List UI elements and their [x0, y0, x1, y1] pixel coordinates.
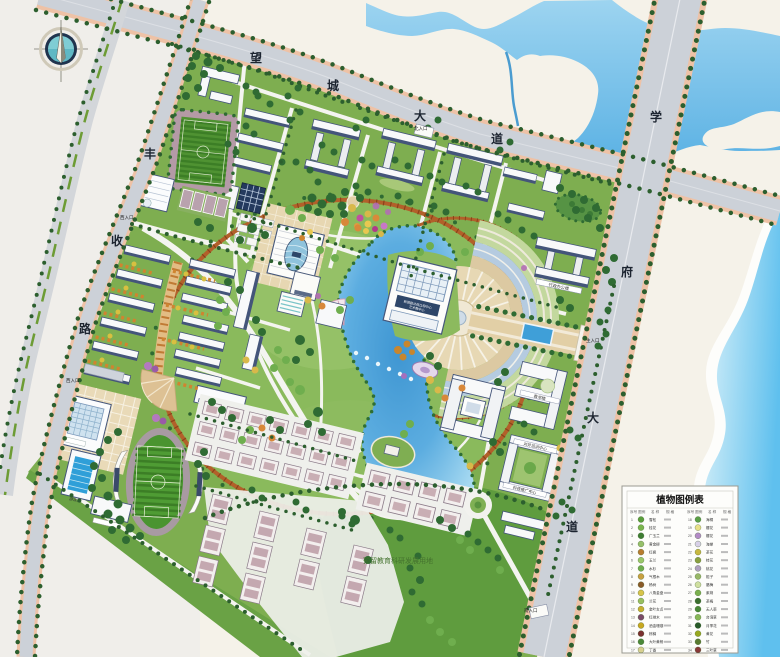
svg-text:26: 26: [688, 583, 692, 587]
svg-text:大叶黄杨: 大叶黄杨: [649, 639, 664, 644]
svg-text:序号 图例: 序号 图例: [687, 509, 703, 514]
svg-text:序号 图例: 序号 图例: [630, 509, 646, 514]
svg-text:10: 10: [631, 591, 635, 595]
svg-text:广玉兰: 广玉兰: [649, 533, 660, 538]
svg-text:5: 5: [631, 551, 633, 555]
svg-text:学: 学: [650, 109, 662, 124]
svg-text:12: 12: [631, 608, 635, 612]
svg-text:16: 16: [631, 640, 635, 644]
svg-text:茶梅: 茶梅: [706, 598, 714, 603]
svg-text:雪松: 雪松: [649, 517, 657, 522]
svg-text:北入口: 北入口: [414, 125, 428, 132]
svg-text:黄金柳: 黄金柳: [649, 541, 660, 546]
svg-text:红枫: 红枫: [649, 550, 657, 555]
svg-text:15: 15: [631, 632, 635, 636]
svg-text:名 称: 名 称: [708, 509, 717, 514]
svg-text:城: 城: [327, 78, 339, 93]
svg-text:22: 22: [688, 551, 692, 555]
svg-text:南入口: 南入口: [524, 607, 538, 614]
svg-text:紫荆: 紫荆: [706, 590, 714, 595]
svg-text:收: 收: [111, 233, 123, 248]
svg-text:主入口: 主入口: [586, 337, 600, 344]
svg-text:34: 34: [688, 648, 692, 652]
svg-text:4: 4: [631, 542, 633, 546]
svg-text:海棠: 海棠: [706, 541, 714, 546]
svg-text:30: 30: [688, 616, 692, 620]
svg-text:腊梅: 腊梅: [706, 582, 714, 587]
svg-text:18: 18: [688, 518, 692, 522]
svg-text:台湾草: 台湾草: [706, 615, 717, 620]
svg-text:兰花: 兰花: [649, 598, 657, 603]
svg-text:路: 路: [79, 321, 92, 336]
svg-text:3: 3: [631, 534, 633, 538]
svg-text:金叶女贞: 金叶女贞: [649, 607, 664, 612]
svg-text:红继木: 红继木: [649, 615, 660, 620]
svg-text:府: 府: [621, 264, 633, 279]
svg-text:丁香: 丁香: [649, 647, 657, 652]
svg-text:无人菜: 无人菜: [706, 607, 717, 612]
svg-text:33: 33: [688, 640, 692, 644]
svg-text:19: 19: [688, 526, 692, 530]
svg-text:预留教育科研发展用地: 预留教育科研发展用地: [363, 556, 433, 565]
svg-text:洒金珊瑚: 洒金珊瑚: [649, 623, 664, 628]
svg-text:茶花: 茶花: [706, 550, 714, 555]
svg-text:三叶草: 三叶草: [706, 647, 717, 652]
svg-text:海桐: 海桐: [706, 517, 714, 522]
svg-text:丰: 丰: [144, 146, 156, 161]
svg-text:气根木: 气根木: [649, 574, 660, 579]
svg-text:1: 1: [631, 518, 633, 522]
svg-text:杨树: 杨树: [649, 582, 657, 587]
svg-text:棕榈: 棕榈: [649, 631, 657, 636]
svg-text:道: 道: [491, 131, 503, 146]
svg-text:玉兰: 玉兰: [649, 558, 657, 563]
svg-text:樱花: 樱花: [706, 525, 714, 530]
svg-text:桂花: 桂花: [706, 558, 714, 563]
svg-text:29: 29: [688, 608, 692, 612]
svg-text:31: 31: [688, 624, 692, 628]
svg-text:黄花: 黄花: [706, 631, 714, 636]
svg-text:桂花: 桂花: [649, 525, 657, 530]
svg-text:25: 25: [688, 575, 692, 579]
svg-text:24: 24: [688, 567, 692, 571]
svg-text:桃花: 桃花: [706, 566, 714, 571]
svg-text:植物图例表: 植物图例表: [655, 494, 704, 506]
svg-text:21: 21: [688, 542, 692, 546]
svg-text:八角金盘: 八角金盘: [649, 590, 664, 595]
svg-text:2: 2: [631, 526, 633, 530]
svg-text:9: 9: [631, 583, 633, 587]
svg-text:23: 23: [688, 559, 692, 563]
svg-text:竹: 竹: [706, 639, 710, 644]
svg-text:名 称: 名 称: [651, 509, 660, 514]
svg-text:望: 望: [250, 50, 262, 65]
svg-text:规 格: 规 格: [666, 509, 675, 514]
svg-text:规 格: 规 格: [723, 509, 732, 514]
svg-text:27: 27: [688, 591, 692, 595]
svg-text:樱花: 樱花: [706, 533, 714, 538]
svg-text:7: 7: [631, 567, 633, 571]
svg-text:32: 32: [688, 632, 692, 636]
svg-text:道: 道: [566, 519, 578, 534]
svg-text:28: 28: [688, 599, 692, 603]
svg-text:17: 17: [631, 648, 635, 652]
svg-text:月季花: 月季花: [706, 623, 717, 628]
svg-text:水杉: 水杉: [649, 566, 657, 571]
svg-text:20: 20: [688, 534, 692, 538]
svg-text:大: 大: [587, 410, 599, 425]
svg-text:13: 13: [631, 616, 635, 620]
svg-text:6: 6: [631, 559, 633, 563]
svg-text:栀子: 栀子: [706, 574, 714, 579]
svg-text:14: 14: [631, 624, 635, 628]
svg-text:11: 11: [631, 599, 635, 603]
svg-text:大: 大: [414, 108, 426, 123]
svg-text:8: 8: [631, 575, 633, 579]
